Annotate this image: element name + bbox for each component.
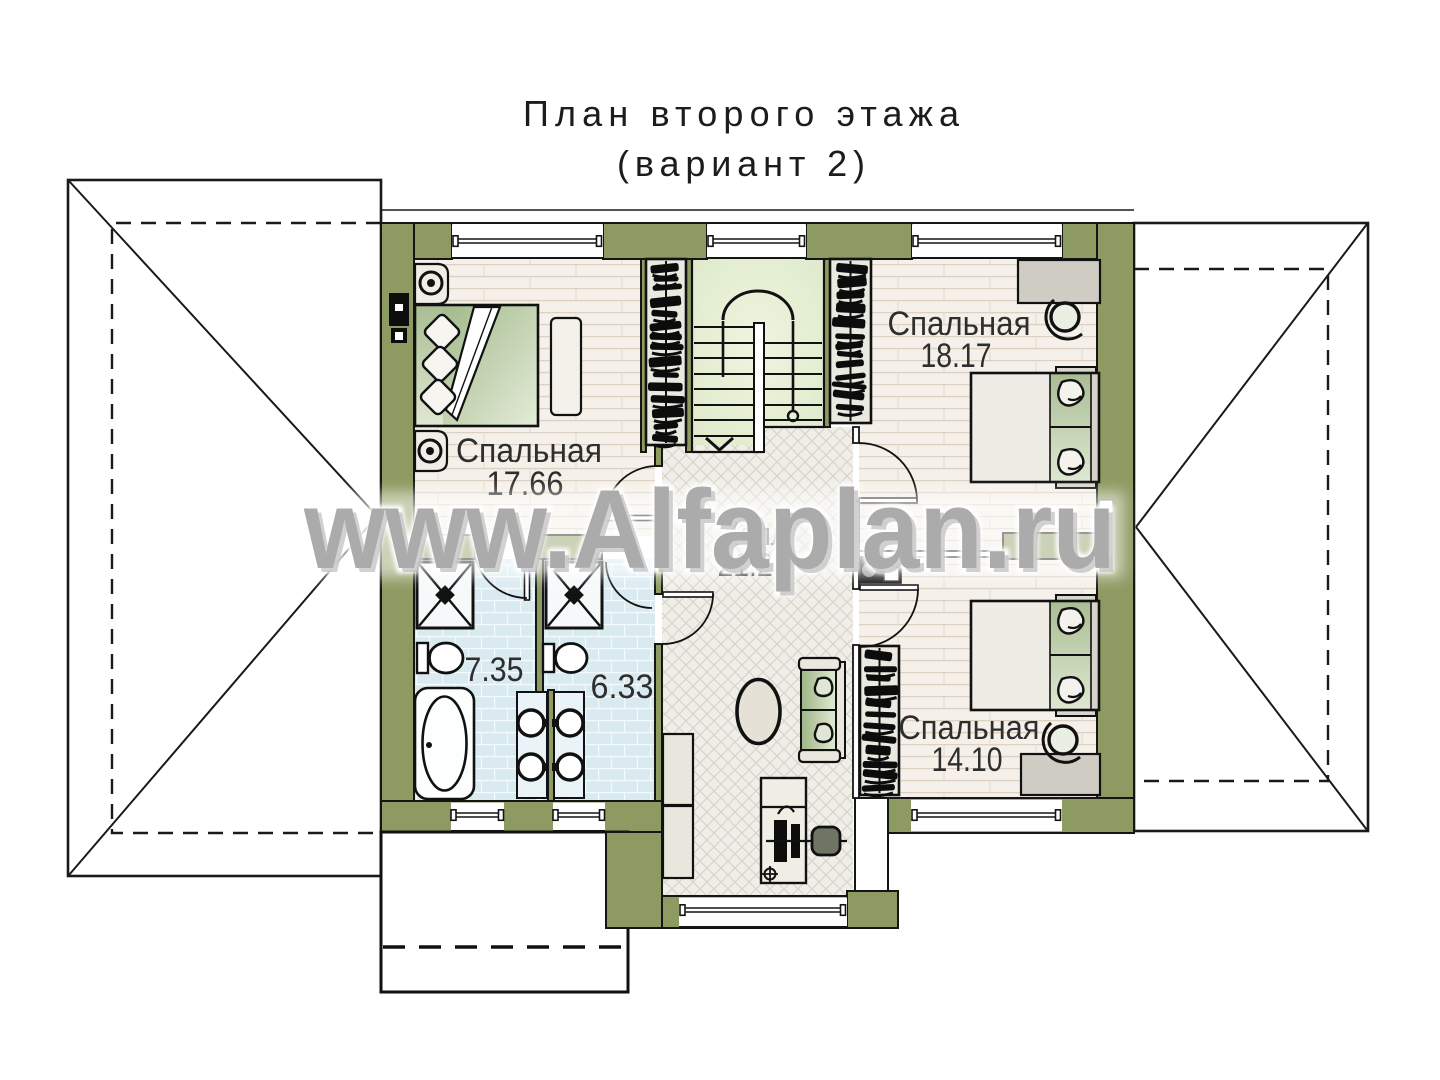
svg-text:18.17: 18.17: [921, 337, 992, 375]
svg-text:www.Alfaplan.ru: www.Alfaplan.ru: [303, 467, 1116, 592]
svg-text:План второго этажа: План второго этажа: [523, 93, 960, 134]
svg-text:6.33: 6.33: [591, 668, 654, 706]
svg-text:7.35: 7.35: [465, 651, 524, 689]
svg-text:14.10: 14.10: [932, 741, 1003, 779]
